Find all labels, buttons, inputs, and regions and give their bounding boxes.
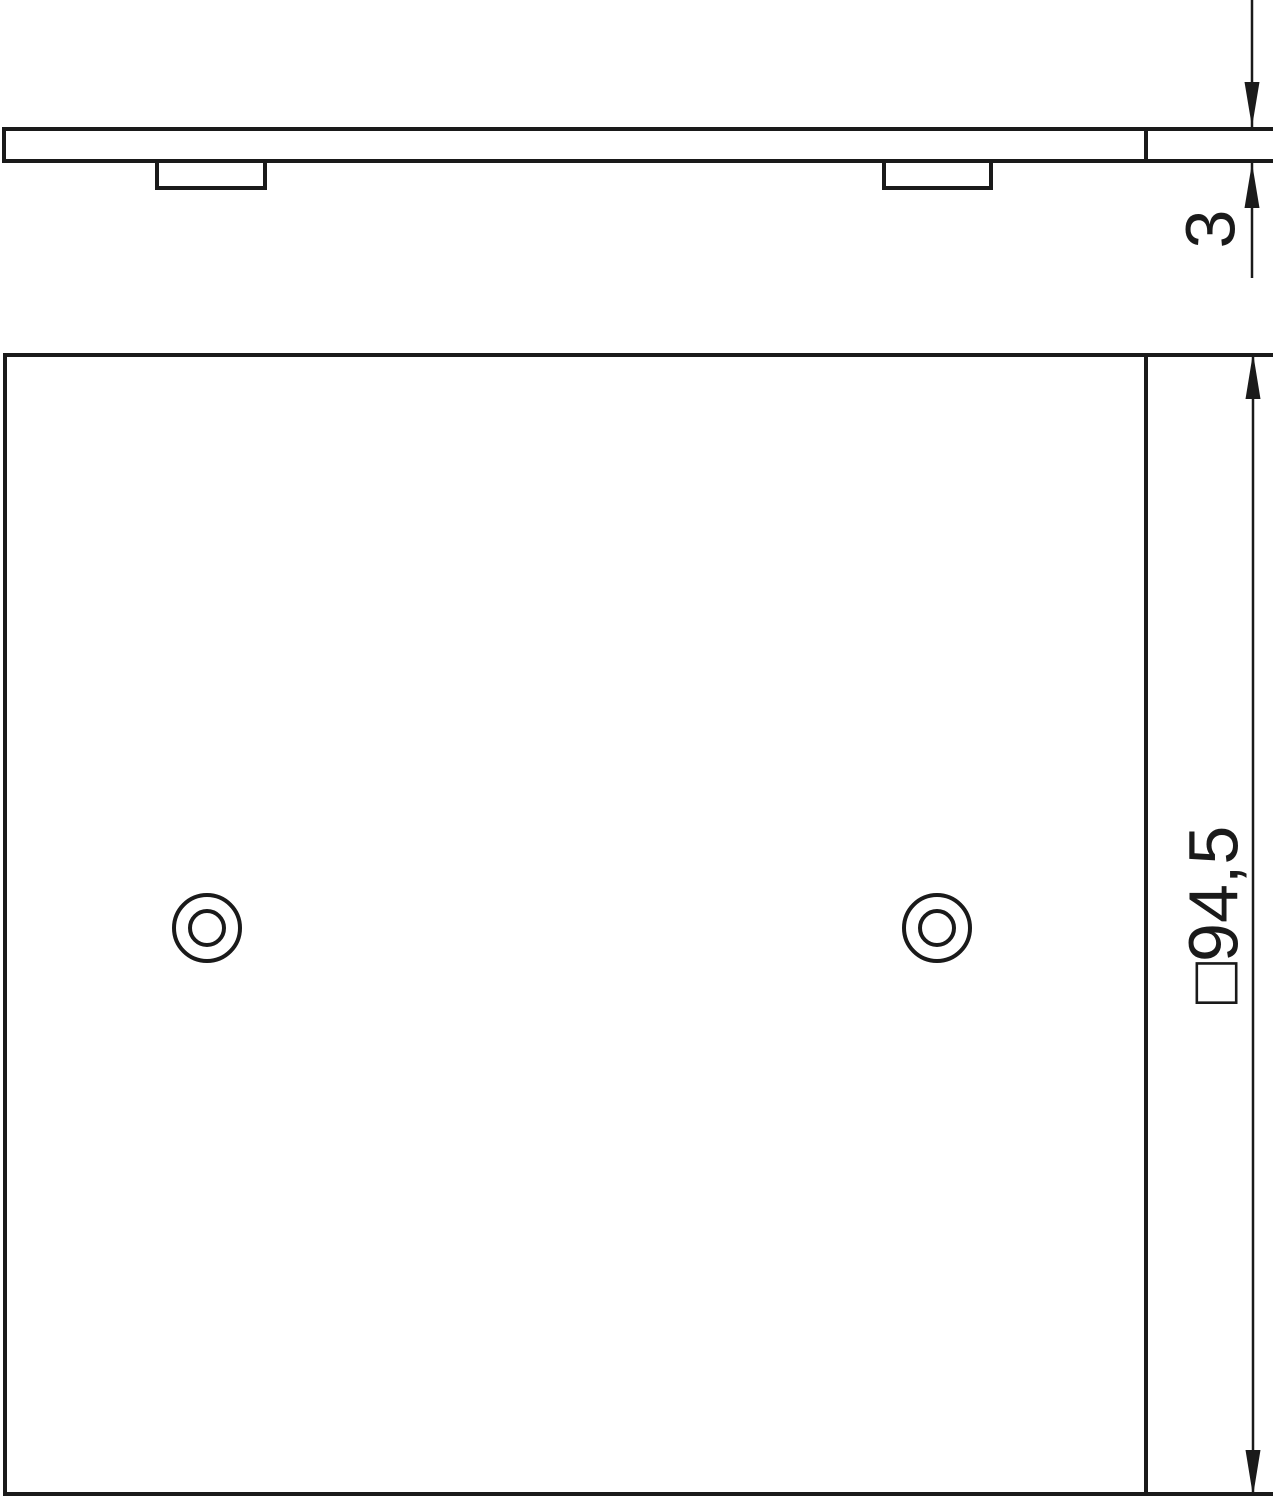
side-view xyxy=(4,129,1273,188)
arrowhead-down-icon xyxy=(1245,82,1260,127)
arrowhead-up-icon xyxy=(1246,353,1261,399)
dimension-size-label: □94,5 xyxy=(1175,826,1253,1005)
side-view-boss-right xyxy=(884,161,991,188)
screw-hole-left-inner xyxy=(190,911,224,945)
dimension-size: □94,5 xyxy=(1175,353,1261,1496)
drawing-svg: 3 □94,5 xyxy=(0,0,1273,1500)
side-view-boss-left xyxy=(157,161,265,188)
arrowhead-down-icon xyxy=(1246,1450,1261,1496)
screw-hole-right-inner xyxy=(920,911,954,945)
technical-drawing-canvas: 3 □94,5 xyxy=(0,0,1273,1500)
dimension-thickness-label: 3 xyxy=(1172,210,1250,249)
side-view-plate-outline xyxy=(4,129,1146,161)
front-view xyxy=(5,355,1273,1494)
arrowhead-up-icon xyxy=(1245,163,1260,208)
dimension-thickness: 3 xyxy=(1172,0,1260,278)
